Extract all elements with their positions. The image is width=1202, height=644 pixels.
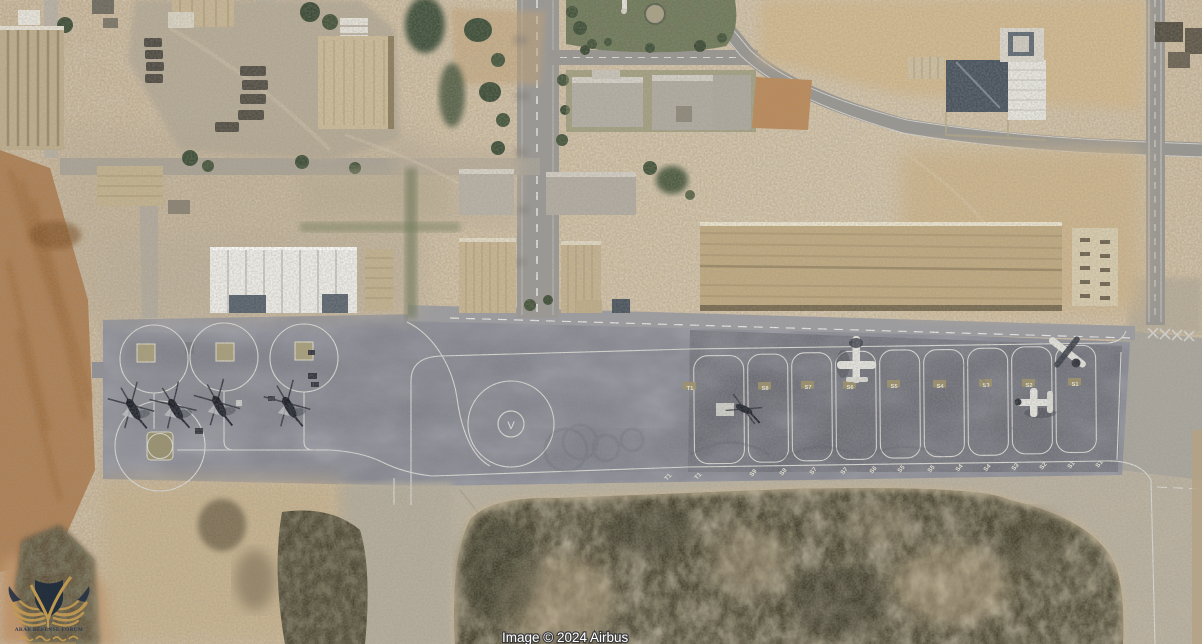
svg-text:Image © 2024 Airbus: Image © 2024 Airbus bbox=[502, 630, 629, 644]
svg-text:ARAB DEFENSE FORUM: ARAB DEFENSE FORUM bbox=[15, 627, 84, 633]
